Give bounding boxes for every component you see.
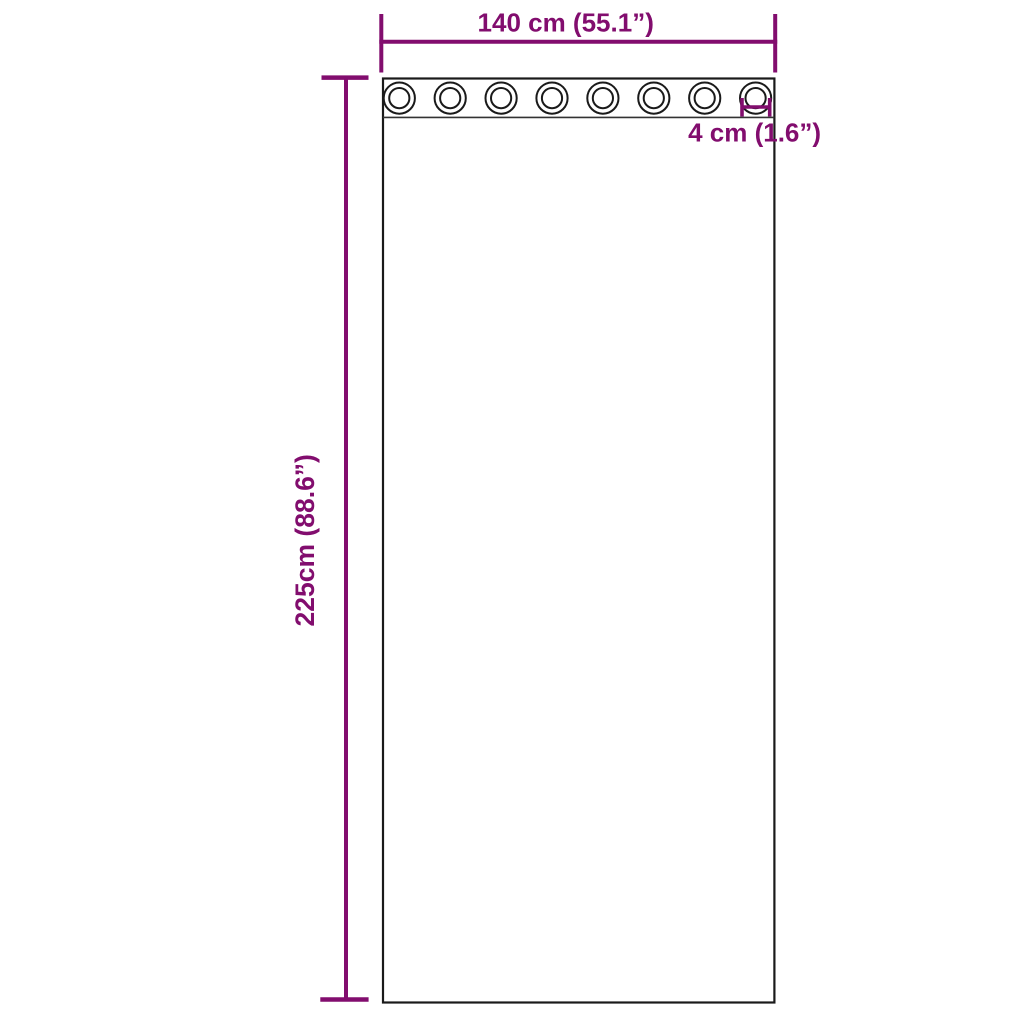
svg-text:140 cm (55.1”): 140 cm (55.1”) (478, 7, 654, 37)
svg-text:225cm (88.6”): 225cm (88.6”) (290, 454, 320, 626)
svg-text:4 cm (1.6”): 4 cm (1.6”) (688, 117, 821, 147)
